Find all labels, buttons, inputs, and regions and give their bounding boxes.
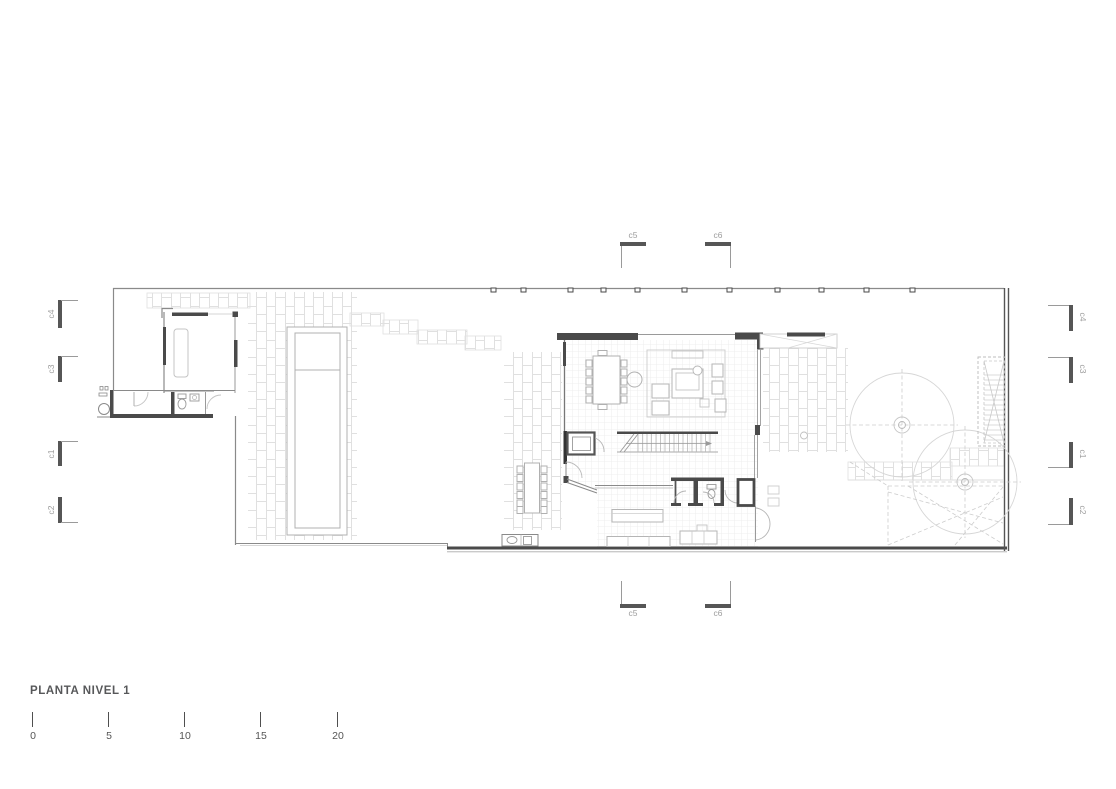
section-cut-bar bbox=[620, 242, 646, 246]
floor-plan-drawing bbox=[0, 0, 1116, 789]
section-cut-line bbox=[621, 581, 622, 604]
scale-tick bbox=[32, 712, 33, 727]
section-label: c2 bbox=[46, 500, 58, 520]
floor-plan-sheet: c5 c6 c5 c6 c4 c3 c1 c2 bbox=[0, 0, 1116, 789]
section-cut-line bbox=[61, 522, 78, 523]
scale-label: 15 bbox=[249, 730, 273, 742]
section-cut-line bbox=[1048, 467, 1069, 468]
section-cut-line bbox=[1048, 524, 1069, 525]
outdoor-dining bbox=[517, 463, 547, 514]
section-cut-bar bbox=[705, 242, 731, 246]
section-cut-bar bbox=[620, 604, 646, 608]
scale-label: 20 bbox=[326, 730, 350, 742]
section-cut-bar bbox=[1069, 305, 1073, 331]
section-cut-line bbox=[1048, 357, 1069, 358]
section-cut-bar bbox=[1069, 442, 1073, 468]
garage bbox=[162, 309, 238, 394]
scale-label: 0 bbox=[21, 730, 45, 742]
bbq-counter bbox=[502, 535, 538, 547]
section-cut-bar bbox=[58, 441, 62, 466]
section-cut-line bbox=[1048, 305, 1069, 306]
terrace-bench bbox=[760, 333, 837, 349]
section-label: c4 bbox=[46, 304, 58, 324]
section-cut-line bbox=[730, 581, 731, 604]
section-cut-bar bbox=[705, 604, 731, 608]
section-cut-bar bbox=[1069, 357, 1073, 383]
section-label: c5 bbox=[616, 230, 650, 240]
section-cut-line bbox=[61, 300, 78, 301]
scale-tick bbox=[337, 712, 338, 727]
section-cut-bar bbox=[58, 300, 62, 328]
scale-label: 5 bbox=[97, 730, 121, 742]
swimming-pool bbox=[287, 327, 347, 535]
section-label: c1 bbox=[46, 444, 58, 464]
section-cut-bar bbox=[58, 356, 62, 382]
section-cut-line bbox=[730, 246, 731, 268]
section-cut-line bbox=[61, 356, 78, 357]
section-cut-line bbox=[621, 246, 622, 268]
section-label: c5 bbox=[616, 608, 650, 618]
section-cut-line bbox=[61, 441, 78, 442]
section-label: c3 bbox=[1076, 359, 1088, 379]
section-label: c2 bbox=[1076, 500, 1088, 520]
section-label: c6 bbox=[701, 230, 735, 240]
scale-label: 10 bbox=[173, 730, 197, 742]
page-title: PLANTA NIVEL 1 bbox=[30, 685, 130, 697]
scale-tick bbox=[260, 712, 261, 727]
section-label: c1 bbox=[1076, 444, 1088, 464]
section-cut-bar bbox=[58, 497, 62, 523]
scale-tick bbox=[108, 712, 109, 727]
section-label: c3 bbox=[46, 359, 58, 379]
section-cut-bar bbox=[1069, 498, 1073, 525]
section-label: c6 bbox=[701, 608, 735, 618]
section-label: c4 bbox=[1076, 307, 1088, 327]
scale-tick bbox=[184, 712, 185, 727]
